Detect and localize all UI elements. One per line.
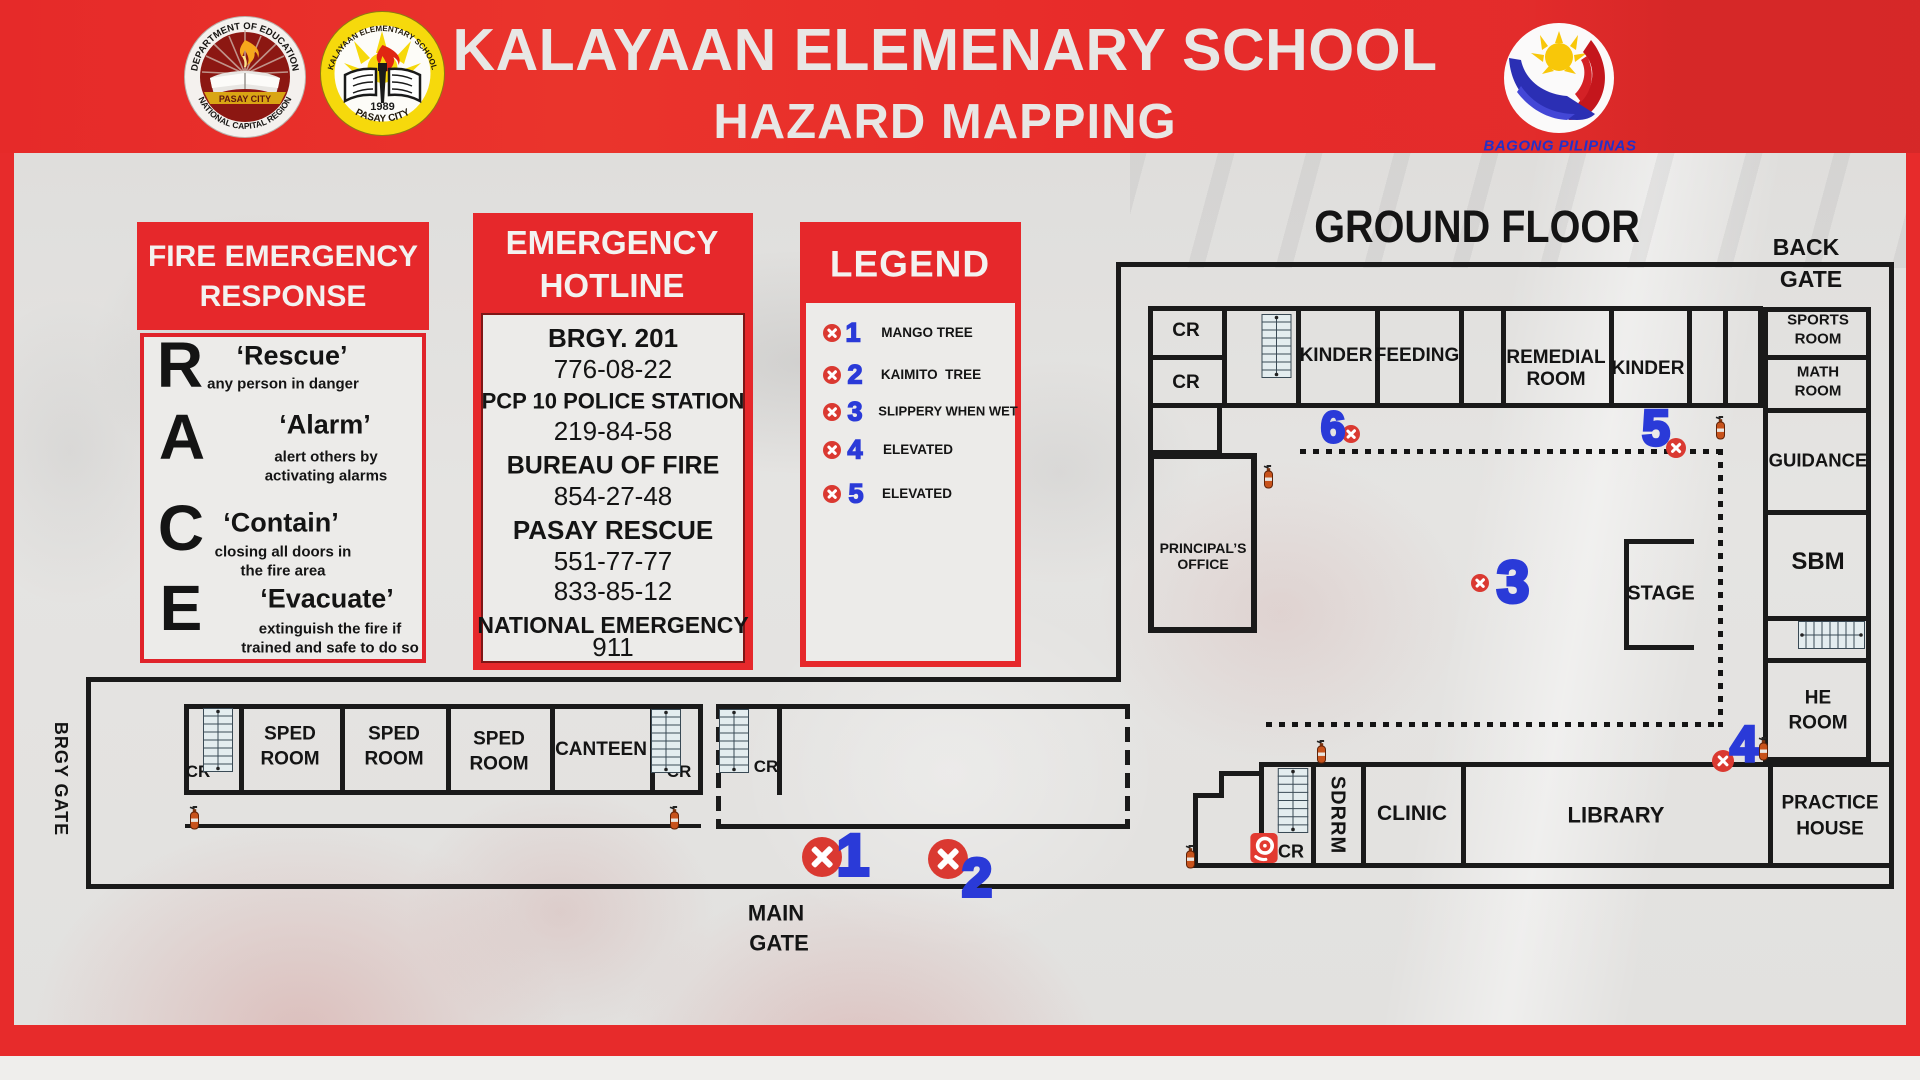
svg-text:PASAY CITY: PASAY CITY — [219, 94, 271, 104]
svg-text:1989: 1989 — [370, 101, 394, 113]
